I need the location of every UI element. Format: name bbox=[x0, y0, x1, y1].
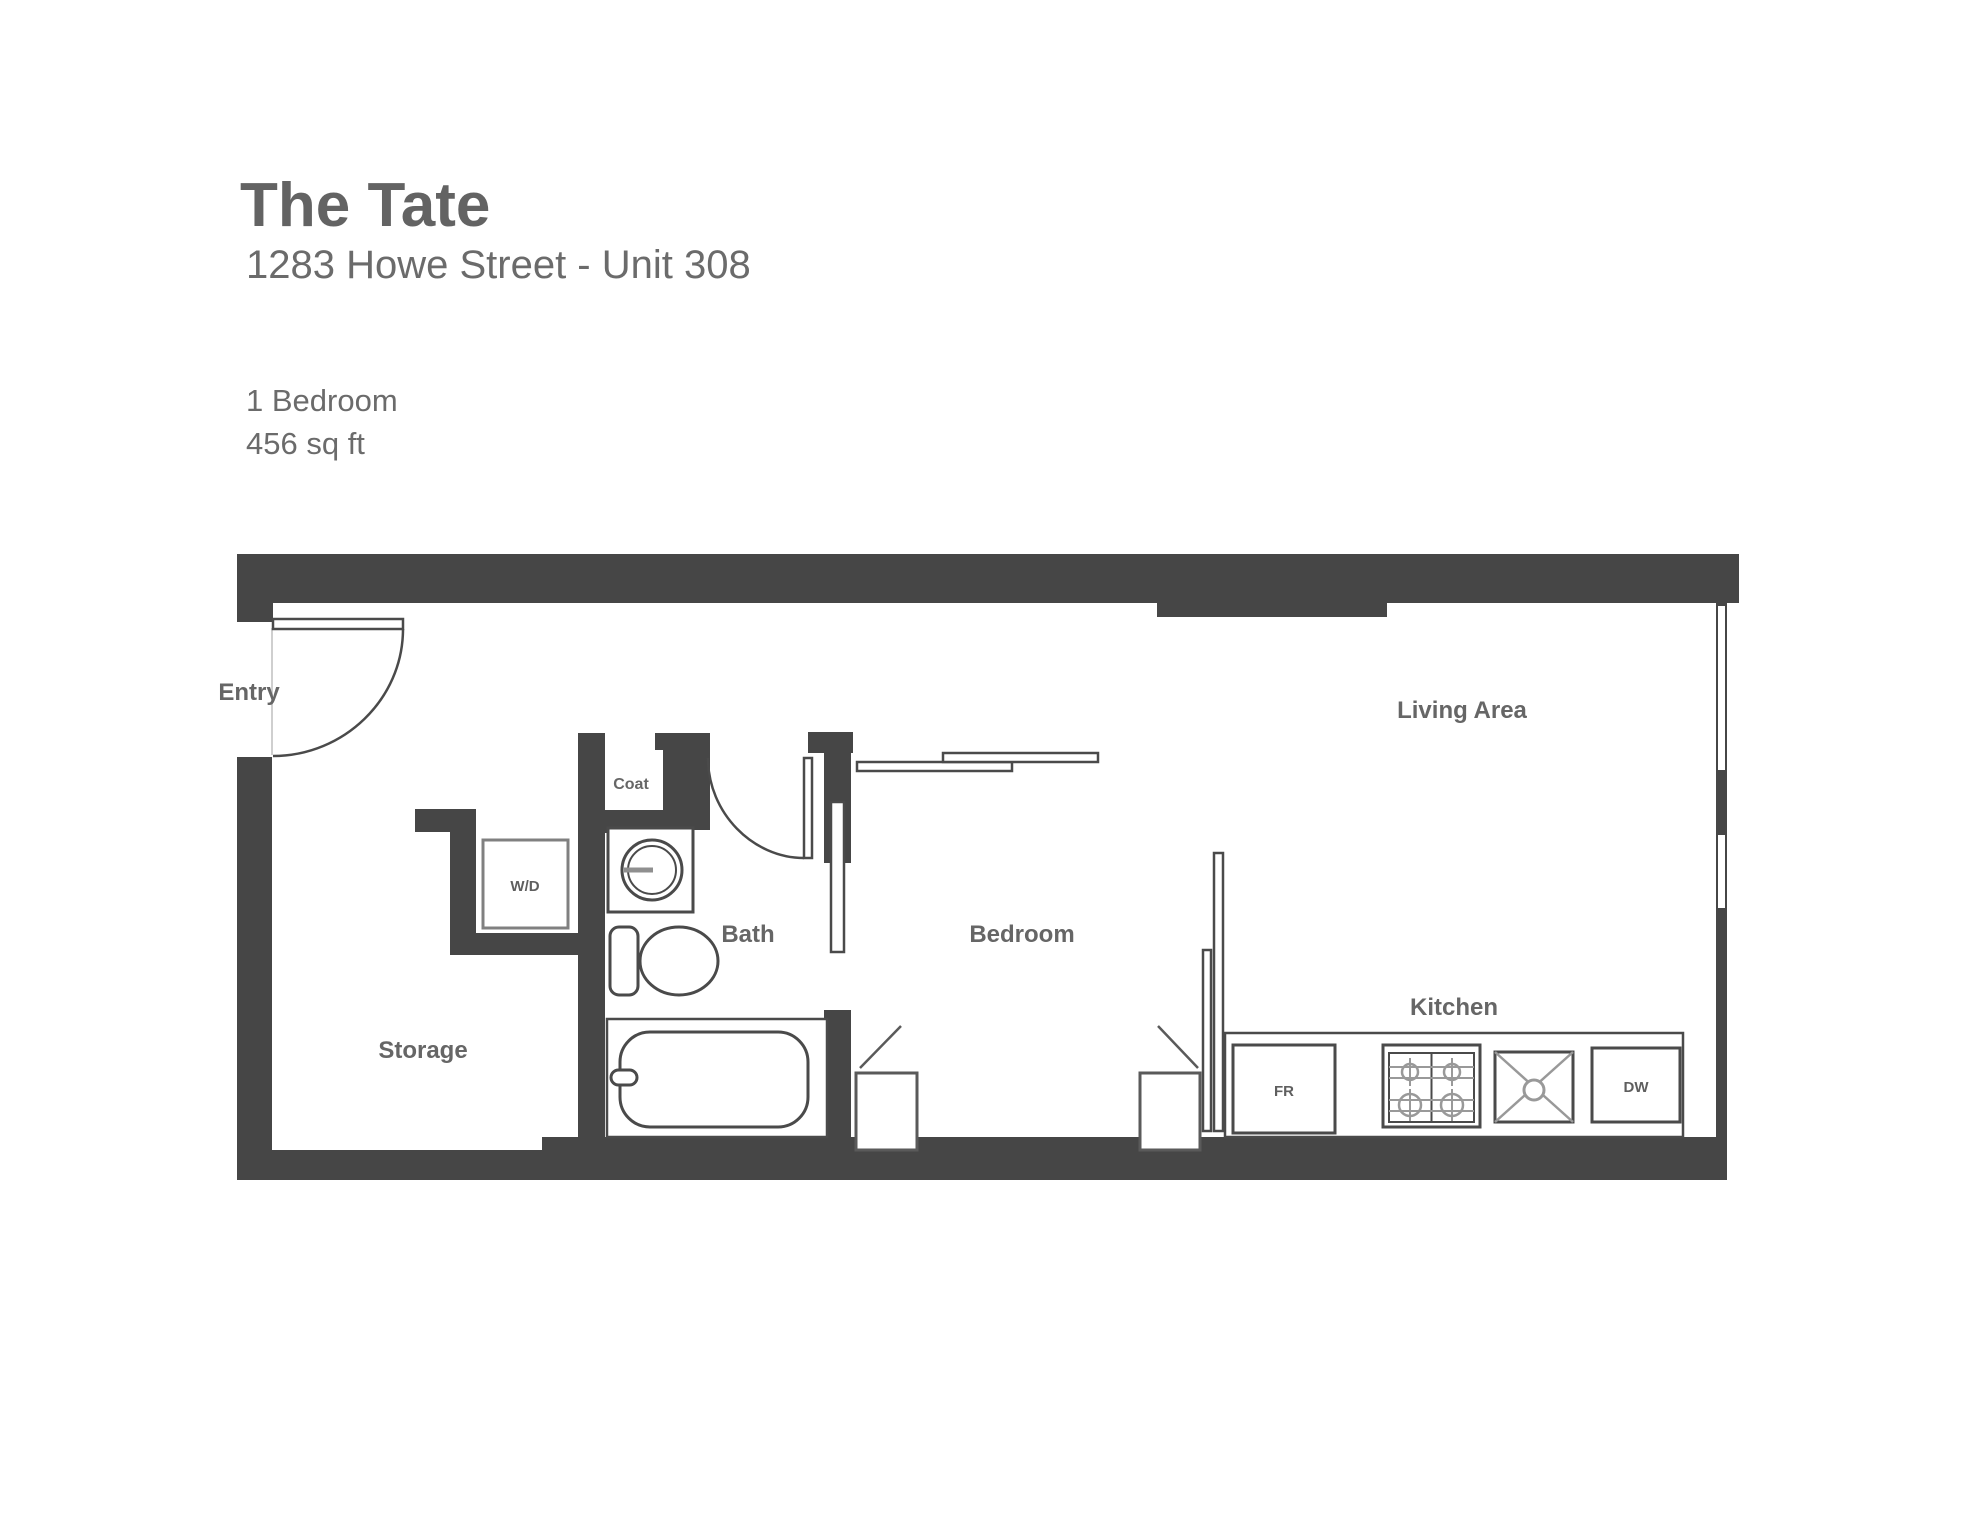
room-label-coat: Coat bbox=[613, 776, 649, 793]
bedroom-east-slider-back bbox=[1214, 853, 1223, 1131]
wall-left bbox=[237, 757, 272, 1180]
room-label-bedroom: Bedroom bbox=[969, 921, 1074, 948]
toilet-tank bbox=[610, 927, 638, 995]
wall-wd-top bbox=[415, 809, 476, 832]
bathtub bbox=[607, 1019, 827, 1137]
wall-top bbox=[238, 554, 1739, 603]
room-label-entry: Entry bbox=[218, 679, 280, 706]
wardrobe-left bbox=[856, 1073, 917, 1150]
wall-corner-topleft bbox=[237, 554, 273, 622]
wall-bath-header bbox=[808, 732, 853, 753]
wall-top-bulkhead bbox=[1157, 603, 1387, 617]
floor-plan-page: The Tate 1283 Howe Street - Unit 308 1 B… bbox=[0, 0, 1980, 1530]
toilet-bowl bbox=[640, 927, 718, 995]
fixture-label-fridge: FR bbox=[1274, 1083, 1294, 1100]
bath-door bbox=[708, 758, 812, 858]
wardrobe-right bbox=[1140, 1073, 1200, 1150]
room-label-kitchen: Kitchen bbox=[1410, 994, 1498, 1021]
window-right-upper bbox=[1718, 606, 1725, 770]
bath-door-swing-arc bbox=[708, 758, 804, 858]
floor-plan-drawing: Entry Storage Coat Bath Bedroom Living A… bbox=[0, 0, 1980, 1530]
fixture-label-washer-dryer: W/D bbox=[510, 878, 539, 895]
sink-drain bbox=[1524, 1080, 1544, 1100]
wardrobe-left-door bbox=[860, 1026, 901, 1068]
bedroom-closet-slider-front bbox=[857, 762, 1012, 771]
wall-wd-bottom bbox=[450, 933, 580, 955]
entry-door bbox=[273, 619, 403, 756]
window-right-lower bbox=[1718, 835, 1725, 908]
entry-door-leaf bbox=[273, 619, 403, 629]
wall-central bbox=[578, 733, 605, 1137]
room-label-bath: Bath bbox=[721, 921, 774, 948]
wall-coat-right bbox=[663, 733, 710, 830]
bathroom-vanity bbox=[608, 828, 693, 912]
bedroom-west-sliding-door bbox=[831, 802, 844, 952]
tub-faucet bbox=[611, 1070, 637, 1085]
toilet bbox=[610, 927, 718, 995]
fixture-label-dishwasher: DW bbox=[1624, 1079, 1650, 1096]
bedroom-east-slider-front bbox=[1203, 950, 1211, 1131]
entry-door-swing-arc bbox=[273, 629, 403, 756]
wall-wd-side bbox=[450, 832, 476, 933]
bedroom-wardrobes bbox=[856, 1026, 1200, 1150]
wardrobe-right-door bbox=[1158, 1026, 1198, 1068]
kitchen-sink bbox=[1495, 1052, 1573, 1122]
room-label-living-area: Living Area bbox=[1397, 697, 1527, 724]
stove bbox=[1383, 1045, 1480, 1127]
wall-bottom bbox=[237, 1150, 1727, 1180]
bath-door-leaf bbox=[804, 758, 812, 858]
room-label-storage: Storage bbox=[378, 1037, 467, 1064]
tub-basin bbox=[620, 1032, 808, 1127]
bedroom-closet-slider-back bbox=[943, 753, 1098, 762]
wall-bottom-raised bbox=[542, 1137, 1727, 1150]
